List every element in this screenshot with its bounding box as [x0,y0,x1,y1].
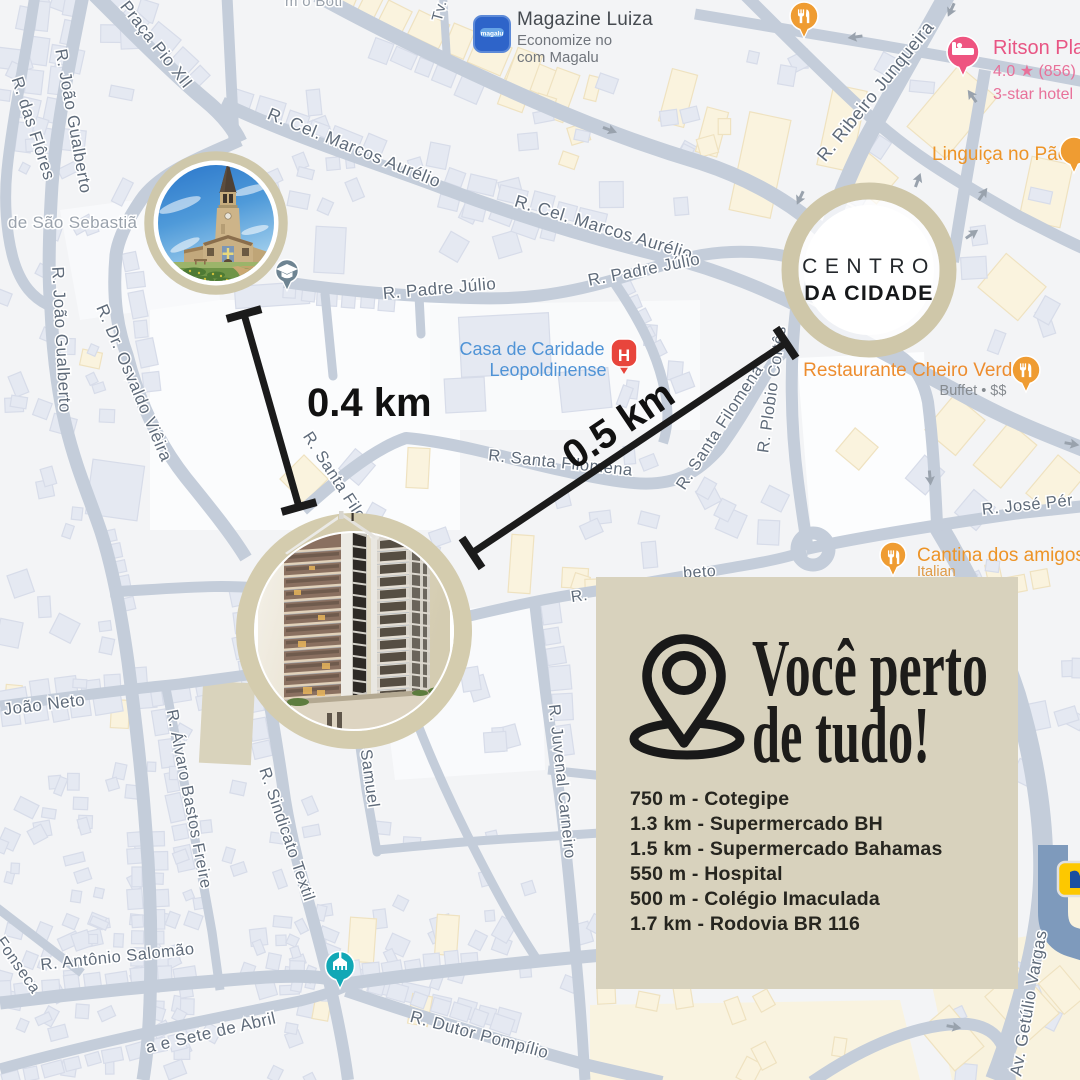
svg-text:H: H [618,346,630,365]
svg-text:DA CIDADE: DA CIDADE [804,281,933,305]
svg-text:550 m - Hospital: 550 m - Hospital [630,863,783,885]
svg-text:R.: R. [570,587,589,606]
svg-text:Leopoldinense: Leopoldinense [489,360,606,380]
svg-text:Ritson Plaz: Ritson Plaz [993,37,1080,59]
svg-text:de São Sebastiã: de São Sebastiã [8,213,138,232]
svg-text:m o Boti: m o Boti [285,0,342,10]
svg-text:750 m - Cotegipe: 750 m - Cotegipe [630,788,789,810]
svg-text:Economize no: Economize no [517,32,612,49]
svg-text:CENTRO: CENTRO [802,255,936,278]
svg-text:magalu: magalu [481,31,504,38]
svg-text:1.7 km - Rodovia BR 116: 1.7 km - Rodovia BR 116 [630,913,860,935]
svg-text:de tudo!: de tudo! [752,692,930,780]
svg-text:1.5 km - Supermercado Bahamas: 1.5 km - Supermercado Bahamas [630,838,943,860]
svg-text:3-star hotel: 3-star hotel [993,86,1073,103]
svg-text:Buffet • $$: Buffet • $$ [940,383,1007,399]
svg-text:com Magalu: com Magalu [517,49,599,66]
svg-text:1.3 km - Supermercado BH: 1.3 km - Supermercado BH [630,813,883,835]
svg-text:4.0 ★ (856): 4.0 ★ (856) [993,63,1076,80]
svg-text:Casa de Caridade: Casa de Caridade [459,339,604,359]
svg-text:0.4 km: 0.4 km [307,381,432,425]
svg-text:Magazine Luiza: Magazine Luiza [517,9,653,30]
svg-text:Restaurante Cheiro Verde: Restaurante Cheiro Verde [803,360,1023,381]
svg-text:Linguiça no Pão: Linguiça no Pão [932,144,1068,165]
svg-text:500 m - Colégio Imaculada: 500 m - Colégio Imaculada [630,888,880,910]
svg-text:Cantina dos amigos: Cantina dos amigos [917,545,1080,566]
